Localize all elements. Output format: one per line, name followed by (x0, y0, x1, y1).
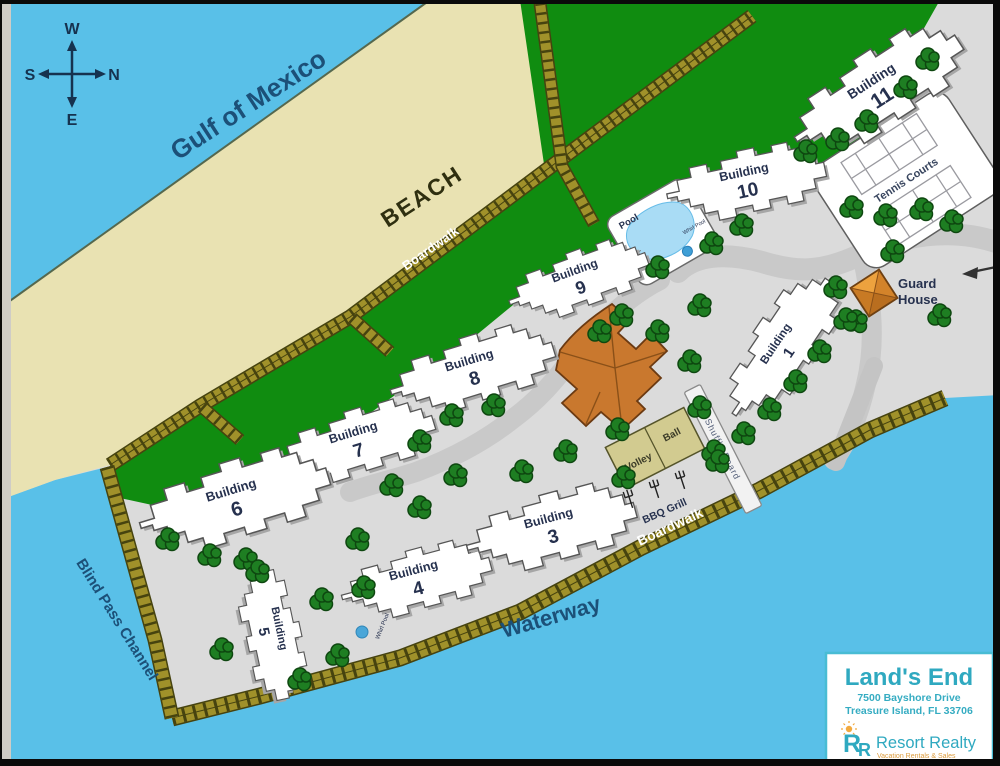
info-box-address-2: Treasure Island, FL 33706 (845, 705, 973, 717)
monogram-r2: R (858, 740, 871, 760)
info-box-address-1: 7500 Bayshore Drive (857, 692, 960, 704)
whirlpool-icon (356, 626, 368, 638)
building-10-number: 10 (735, 179, 760, 204)
compass-top: W (64, 21, 80, 38)
compass-right: N (108, 67, 120, 84)
compass-left: S (25, 67, 36, 84)
resort-site-map: Shuffle Board Volley Ball Pool Whirl Poo… (0, 0, 1000, 766)
guard-house-label-1: Guard (898, 276, 936, 291)
brand-tagline: Vacation Rentals & Sales (877, 753, 956, 760)
compass-bottom: E (67, 112, 78, 129)
info-box: Land's End 7500 Bayshore Drive Treasure … (826, 653, 993, 763)
brand-name: Resort Realty (876, 734, 977, 752)
guard-house-label-2: House (898, 292, 938, 307)
info-box-title: Land's End (845, 664, 973, 691)
